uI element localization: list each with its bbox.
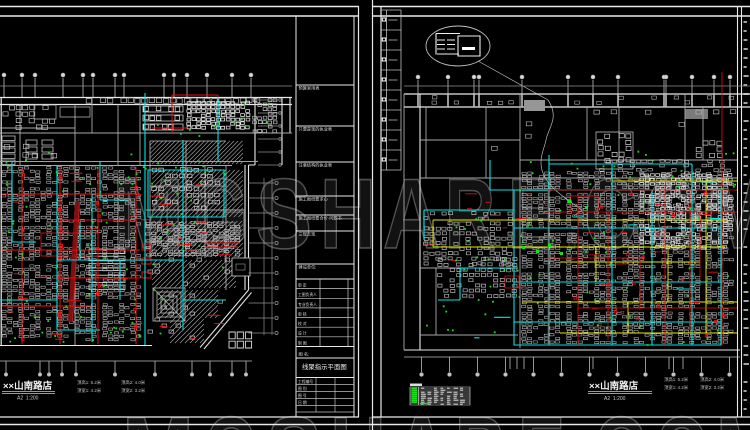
svg-text:线聚指示平面图: 线聚指示平面图 [302,362,347,371]
svg-text:图 别: 图 别 [298,386,307,391]
svg-text:审 核: 审 核 [298,311,307,316]
svg-text:图 名:: 图 名: [299,351,310,358]
svg-text:顶宽2: 3.2米: 顶宽2: 3.2米 [121,387,146,394]
svg-text:S: S [256,158,312,269]
svg-text:顶宽1: 4.2米: 顶宽1: 4.2米 [664,384,689,391]
svg-text:注意结构的执业表: 注意结构的执业表 [299,162,333,169]
svg-text:顶高2: 4.0米: 顶高2: 4.0米 [121,379,146,386]
svg-text:校 对: 校 对 [298,321,307,326]
svg-text:三规志现: 三规志现 [299,231,316,238]
svg-text:预算室用表: 预算室用表 [299,85,321,92]
svg-text:××山南路店: ××山南路店 [589,380,639,392]
svg-text:顶宽2: 3.2米: 顶宽2: 3.2米 [700,384,725,391]
svg-text:建设单位:: 建设单位: [299,264,317,271]
svg-text:日 期: 日 期 [298,400,307,405]
svg-text:施工图纸要合价·问题书: 施工图纸要合价·问题书 [299,215,342,222]
svg-text:顶宽1: 4.2米: 顶宽1: 4.2米 [77,387,102,394]
svg-text:专业负责人: 专业负责人 [298,302,317,307]
svg-text:工图负责人: 工图负责人 [298,292,317,297]
svg-text:只要是现的执业表: 只要是现的执业表 [299,126,333,133]
svg-text:A2 1:200: A2 1:200 [17,396,39,402]
svg-text:审 定: 审 定 [298,283,307,288]
svg-text:设 计: 设 计 [298,331,307,336]
svg-text:制 图: 制 图 [298,340,307,345]
svg-text:H: H [320,158,376,269]
svg-text:A2 1:200: A2 1:200 [604,396,626,402]
svg-text:××山南路店: ××山南路店 [3,380,53,392]
svg-text:图 号: 图 号 [298,393,307,398]
svg-text:顶高1: 5.2米: 顶高1: 5.2米 [77,379,102,386]
svg-text:顶高1: 5.2米: 顶高1: 5.2米 [664,376,689,383]
svg-text:工程编号: 工程编号 [298,379,313,384]
svg-text:顶高2: 4.0米: 顶高2: 4.0米 [700,376,725,383]
svg-text:施工图纸要求心: 施工图纸要求心 [299,196,329,203]
